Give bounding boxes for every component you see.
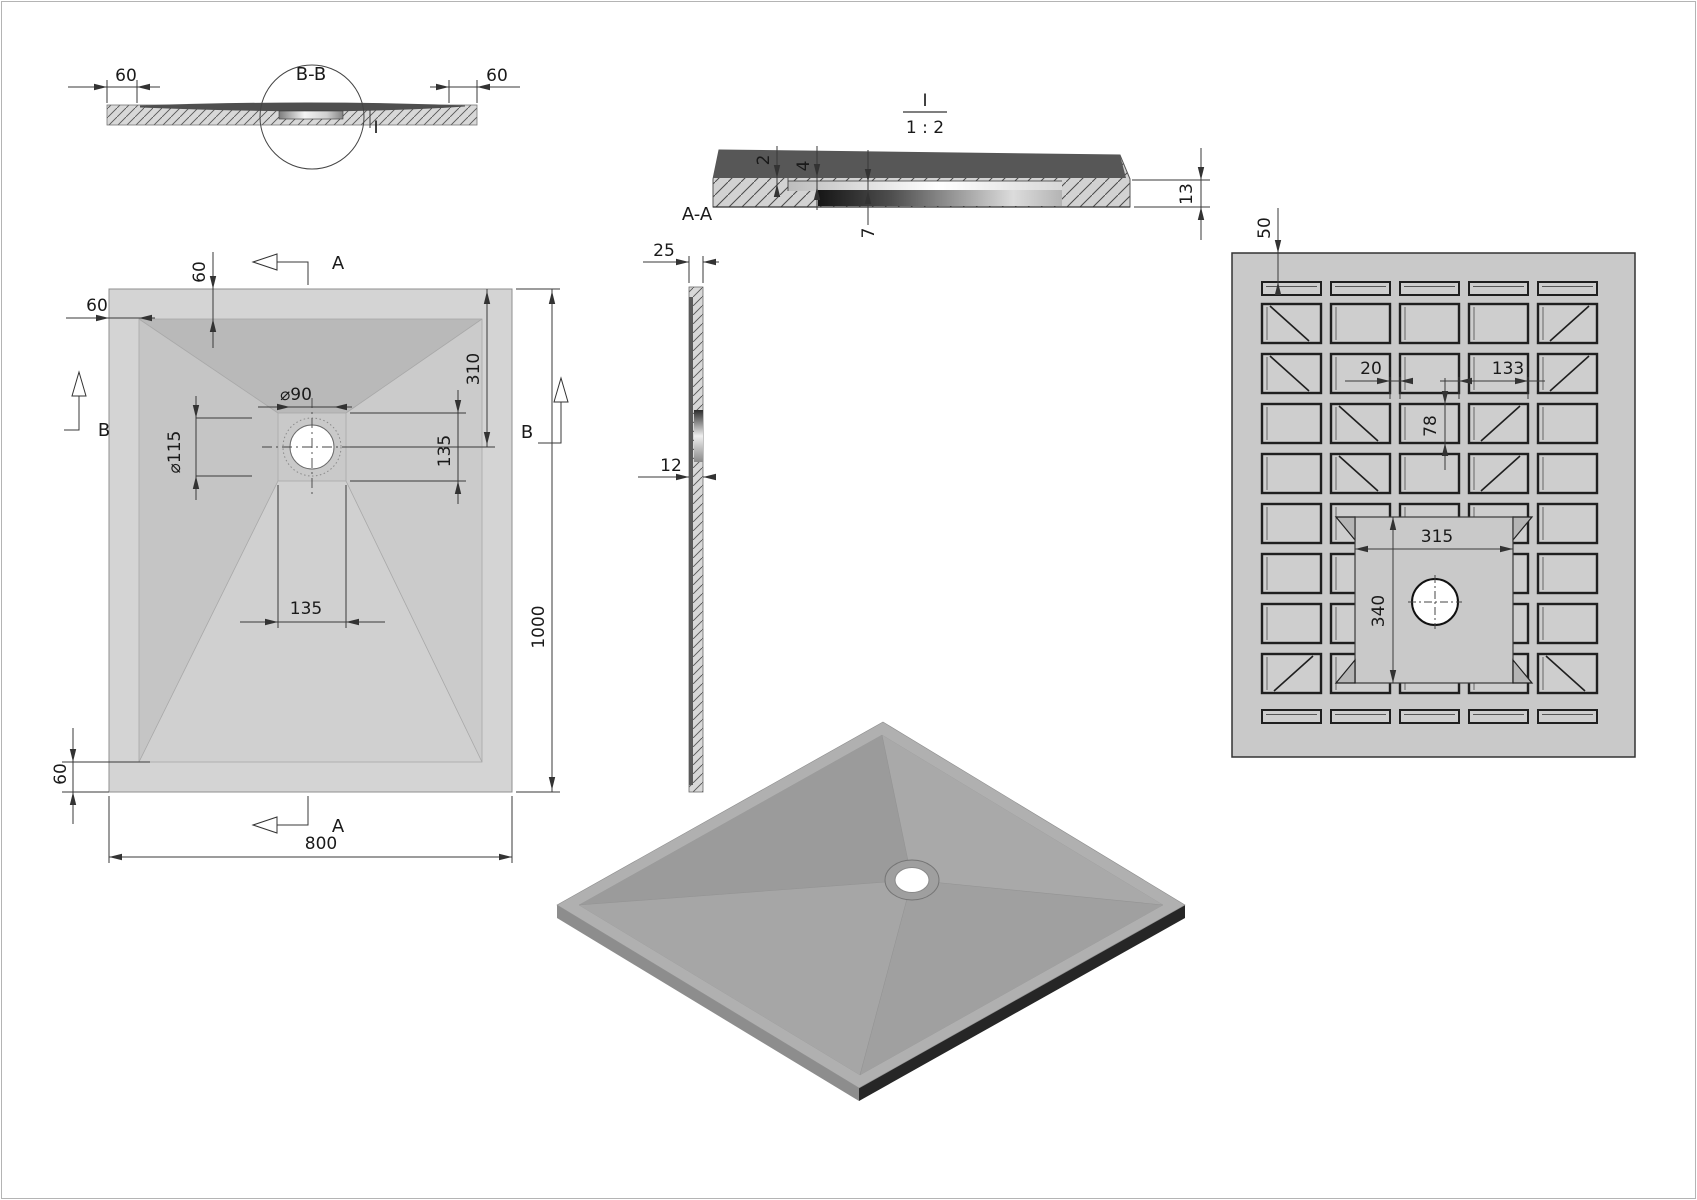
rib-cell (1262, 454, 1321, 493)
dim-arrowhead (70, 749, 76, 762)
dim-arrowhead (137, 84, 150, 90)
rib-cell (1331, 454, 1390, 493)
rib-cell (1262, 654, 1321, 693)
view-bottom: 50 20 133 78 315 340 (1232, 208, 1635, 757)
rib-cell (1400, 304, 1459, 343)
dim-plan-d90: ⌀90 (280, 385, 312, 405)
rib-slot (1262, 282, 1321, 295)
dim-arrowhead (477, 84, 490, 90)
plan-label-a-top: A (332, 253, 345, 274)
iso-wedge-nw (579, 735, 912, 905)
rib-slot (1469, 282, 1528, 295)
plan-label-b-right: B (521, 422, 533, 443)
aa-recess-deep (818, 190, 1062, 206)
section-arrow-b-right (554, 378, 568, 402)
rib-cell (1538, 654, 1597, 693)
rib-cell (1469, 454, 1528, 493)
iso-wedge-se (860, 880, 1163, 1075)
bb-drain-recess (279, 111, 343, 119)
dim-arrowhead (1275, 240, 1281, 253)
iso-drain-hole (895, 868, 929, 893)
rib-cell (1262, 304, 1321, 343)
rib-cell (1538, 554, 1597, 593)
dim-plan-135-v: 135 (435, 435, 455, 467)
rib-slot (1538, 710, 1597, 723)
dim-plan-310: 310 (464, 353, 484, 385)
cad-drawing-canvas: B-B I 60 60 I 1 : 2 A-A 2 4 7 (0, 0, 1697, 1200)
rib-cell (1262, 504, 1321, 543)
dim-arrowhead (1198, 167, 1204, 180)
rib-cell (1538, 504, 1597, 543)
dim-arrowhead (676, 259, 689, 265)
aa-recess-seat (788, 181, 1062, 191)
iso-wedge-sw (579, 880, 912, 1075)
dim-plan-60-bottom: 60 (51, 763, 71, 785)
rib-cell (1400, 354, 1459, 393)
dim-plan-1000: 1000 (529, 605, 549, 648)
dim-arrowhead (549, 777, 555, 790)
rib-cell (1262, 604, 1321, 643)
dim-side-25: 25 (653, 241, 675, 261)
rib-cell (1469, 304, 1528, 343)
dim-arrowhead (703, 259, 716, 265)
view-detail-i: I 1 : 2 A-A 2 4 7 13 (682, 91, 1210, 240)
rib-cell (1400, 454, 1459, 493)
rib-cell (1262, 404, 1321, 443)
rib-slot (1331, 282, 1390, 295)
view-section-bb: B-B I 60 60 (68, 64, 520, 169)
rib-cell (1262, 554, 1321, 593)
detail-title: I (922, 91, 927, 111)
section-arrow-a-bottom (253, 817, 277, 833)
dim-plan-800: 800 (305, 834, 337, 854)
section-arrow-a-top (253, 254, 277, 270)
rib-cell (1469, 404, 1528, 443)
dim-arrowhead (70, 792, 76, 805)
dim-arrowhead (499, 854, 512, 860)
dim-arrowhead (1198, 207, 1204, 220)
dim-bottom-133: 133 (1492, 359, 1524, 379)
rib-slot (1331, 710, 1390, 723)
rib-cell (1262, 354, 1321, 393)
side-surface-edge (689, 297, 693, 785)
dim-plan-60-top: 60 (190, 261, 210, 283)
dim-arrowhead (210, 276, 216, 289)
rib-cell (1538, 304, 1597, 343)
dim-bottom-50: 50 (1255, 217, 1275, 239)
rib-cell (1538, 404, 1597, 443)
dim-arrowhead (676, 474, 689, 480)
dim-side-12: 12 (660, 456, 682, 476)
dim-bottom-20: 20 (1360, 359, 1382, 379)
rib-cell (1538, 604, 1597, 643)
detail-marker-I: I (373, 118, 378, 138)
dim-bb-left: 60 (115, 66, 137, 86)
view-plan: 60 60 A B B ⌀90 ⌀115 135 310 (51, 252, 568, 863)
dim-plan-d115: ⌀115 (165, 431, 185, 474)
plan-label-b-left: B (98, 420, 110, 441)
rib-slot (1400, 282, 1459, 295)
detail-scale: 1 : 2 (906, 118, 944, 138)
dim-arrowhead (703, 474, 716, 480)
aa-label: A-A (682, 204, 713, 225)
section-arrow-b-left (72, 372, 86, 396)
side-drain-boss (694, 410, 703, 462)
dim-aa-13: 13 (1177, 183, 1197, 205)
dim-bottom-340: 340 (1369, 595, 1389, 627)
rib-slot (1538, 282, 1597, 295)
dim-plan-135-h: 135 (290, 599, 322, 619)
dim-bottom-78: 78 (1421, 415, 1441, 437)
rib-slot (1262, 710, 1321, 723)
dim-bottom-315: 315 (1421, 527, 1453, 547)
dim-plan-60-left: 60 (86, 296, 108, 316)
view-side-section: 25 12 (638, 241, 719, 792)
dim-arrowhead (436, 84, 449, 90)
dim-bb-right: 60 (486, 66, 508, 86)
drawing-sheet: B-B I 60 60 I 1 : 2 A-A 2 4 7 (0, 0, 1697, 1200)
dim-aa-7: 7 (859, 228, 879, 239)
view-isometric (557, 722, 1185, 1101)
rib-cell (1538, 454, 1597, 493)
rib-cell (1331, 404, 1390, 443)
section-bb-title: B-B (296, 64, 327, 85)
dim-aa-2: 2 (754, 155, 774, 166)
rib-cell (1331, 304, 1390, 343)
rib-slot (1400, 710, 1459, 723)
rib-cell (1538, 354, 1597, 393)
dim-arrowhead (94, 84, 107, 90)
dim-aa-4: 4 (794, 161, 814, 172)
rib-slot (1469, 710, 1528, 723)
dim-arrowhead (109, 854, 122, 860)
dim-arrowhead (549, 291, 555, 304)
